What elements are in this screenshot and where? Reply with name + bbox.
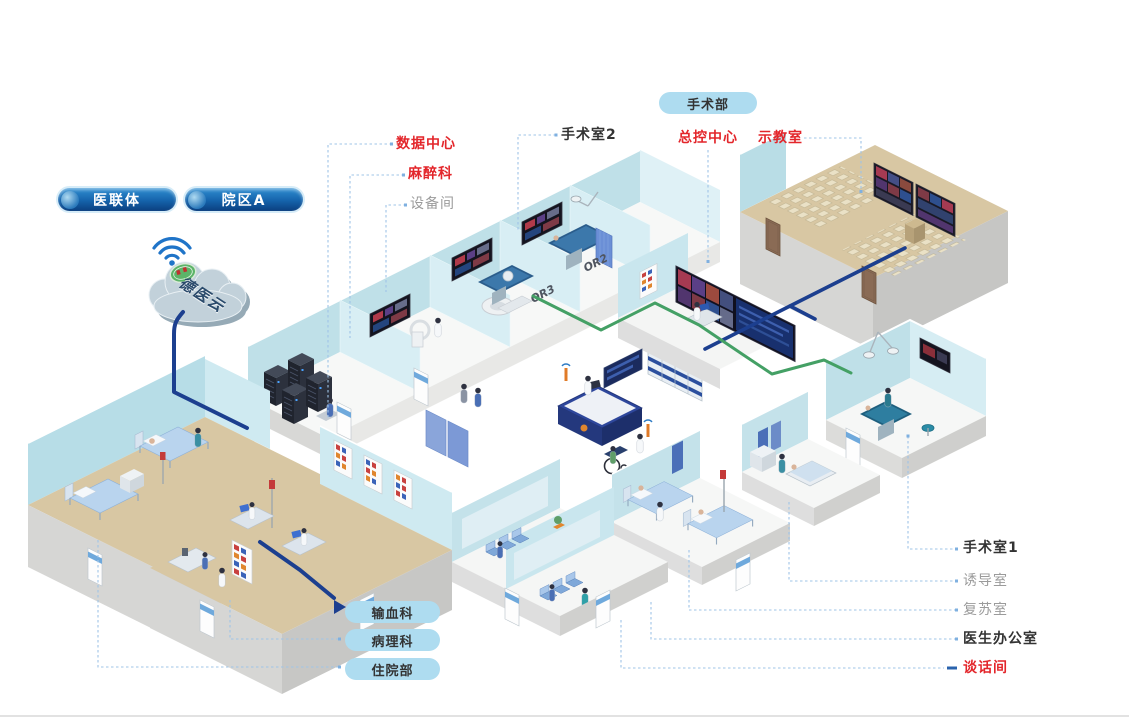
label-data-center: 数据中心 <box>396 137 456 151</box>
demo-classroom <box>740 131 1008 350</box>
double-door <box>426 410 468 467</box>
surgery-dept-pill-label: 手术部 <box>687 94 729 113</box>
campus-a-button[interactable]: 院区A <box>185 188 303 211</box>
label-induction: 诱导室 <box>963 574 1008 588</box>
corridor-wall-screen <box>604 349 642 388</box>
blood-dept-pill-label: 输血科 <box>371 603 413 622</box>
or1-room <box>826 320 986 478</box>
isometric-illustration: OR3 OR2 <box>0 0 1129 721</box>
campus-a-button-label: 院区A <box>222 190 267 210</box>
label-master-control: 总控中心 <box>678 131 738 145</box>
alliance-button[interactable]: 医联体 <box>58 188 176 211</box>
label-demo-room: 示教室 <box>758 131 803 145</box>
label-equipment: 设备间 <box>410 197 455 211</box>
inpatient-dept-pill-label: 住院部 <box>371 660 413 679</box>
label-recovery: 复苏室 <box>963 603 1008 617</box>
blood-dept-pill: 输血科 <box>345 601 440 623</box>
talk-room-tick <box>947 667 957 670</box>
label-doctor-office: 医生办公室 <box>963 632 1038 646</box>
label-or1: 手术室1 <box>963 541 1019 555</box>
label-anesthesia: 麻醉科 <box>408 167 453 181</box>
hospital-isometric-diagram: OR3 OR2 <box>0 0 1129 721</box>
label-talk-room: 谈话间 <box>963 661 1008 675</box>
bottom-divider <box>0 715 1129 717</box>
pathology-dept-pill: 病理科 <box>345 629 440 651</box>
label-or2: 手术室2 <box>561 128 617 142</box>
reception-desk <box>558 380 642 446</box>
surgery-dept-pill: 手术部 <box>659 92 757 114</box>
pathology-dept-pill-label: 病理科 <box>371 631 413 650</box>
alliance-button-label: 医联体 <box>93 190 141 210</box>
inpatient-dept-pill: 住院部 <box>345 658 440 680</box>
